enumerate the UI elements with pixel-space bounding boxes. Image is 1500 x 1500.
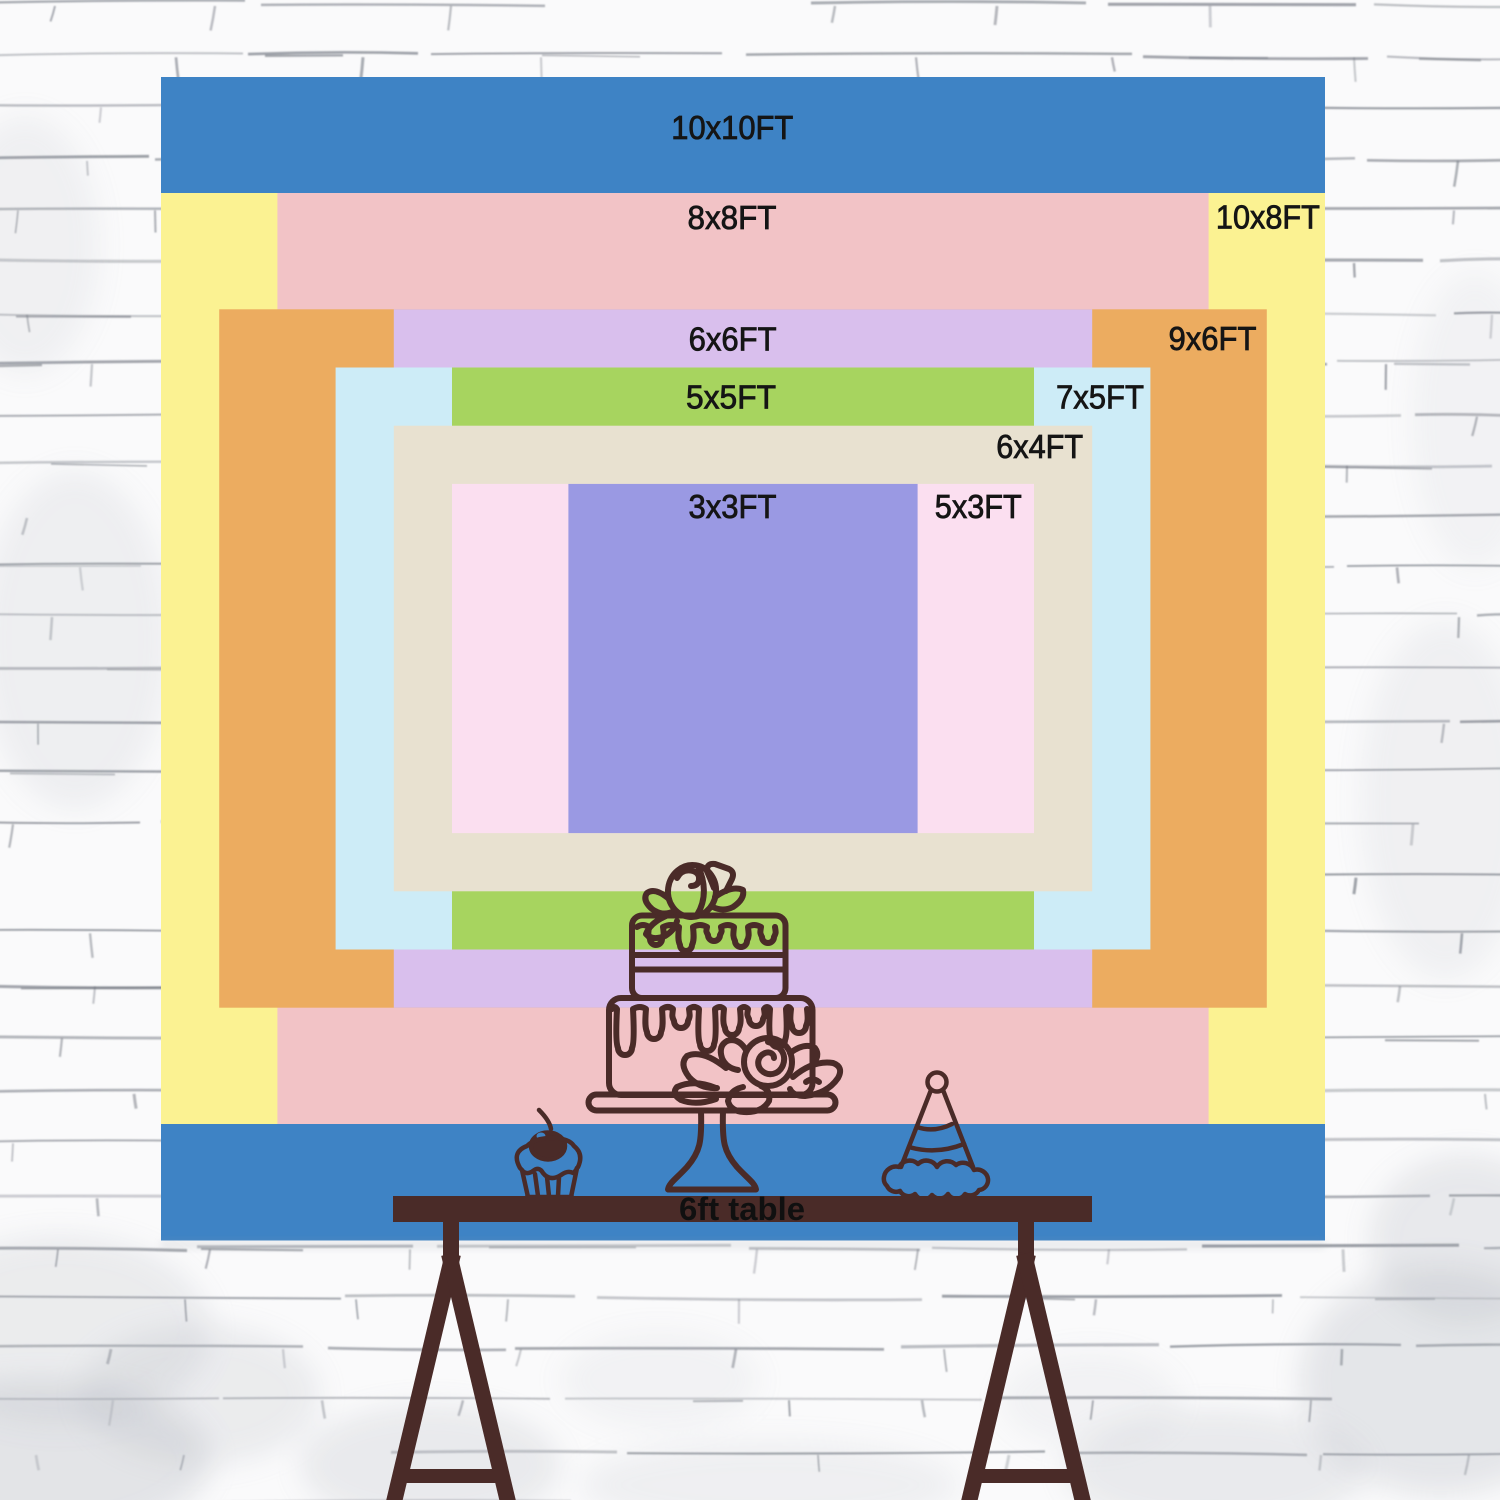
svg-text:9x6FT: 9x6FT	[1169, 320, 1257, 357]
svg-text:10x8FT: 10x8FT	[1216, 199, 1320, 236]
svg-text:6x6FT: 6x6FT	[689, 321, 777, 358]
svg-text:8x8FT: 8x8FT	[688, 199, 777, 236]
svg-text:7x5FT: 7x5FT	[1056, 379, 1144, 416]
svg-text:10x10FT: 10x10FT	[671, 109, 793, 146]
svg-text:6x4FT: 6x4FT	[996, 428, 1083, 465]
svg-text:5x5FT: 5x5FT	[686, 379, 776, 416]
svg-text:6ft table: 6ft table	[679, 1191, 805, 1227]
svg-text:5x3FT: 5x3FT	[935, 488, 1022, 525]
svg-text:3x3FT: 3x3FT	[689, 488, 777, 525]
